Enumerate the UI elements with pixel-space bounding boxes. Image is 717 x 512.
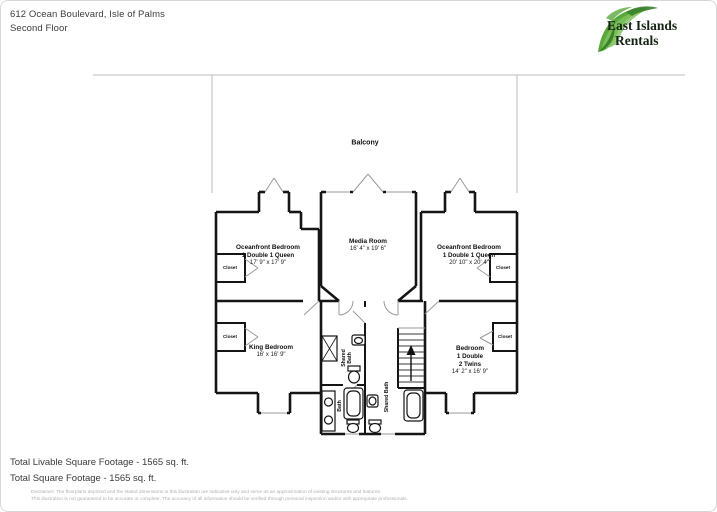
- total-sqft: Total Square Footage - 1565 sq. ft.: [10, 473, 156, 484]
- balcony-label: Balcony: [351, 138, 378, 147]
- media-room-label: Media Room 16' 4" x 19' 6": [349, 238, 387, 254]
- closet-label: Closet: [496, 265, 510, 271]
- closet-label: Closet: [223, 334, 237, 340]
- oceanfront-right-label: Oceanfront Bedroom 1 Double 1 Queen 20' …: [437, 244, 501, 268]
- staircase: [399, 334, 424, 382]
- king-bedroom-label: King Bedroom 16' x 16' 9": [249, 344, 293, 360]
- bath-fixtures: [322, 335, 423, 433]
- bath-label: Bath: [338, 400, 344, 412]
- disclaimer-line2: This illustration is not guaranteed to b…: [31, 497, 408, 502]
- shared-bath-right-label: Shared Bath: [385, 382, 391, 413]
- closet-boxes: [216, 254, 517, 351]
- oceanfront-left-label: Oceanfront Bedroom 1 Double 1 Queen 17' …: [236, 244, 300, 268]
- closet-label: Closet: [498, 334, 512, 340]
- disclaimer-line1: Disclaimer: The floorplans depicted and …: [31, 490, 381, 495]
- floor-plan-page: 612 Ocean Boulevard, Isle of Palms Secon…: [0, 0, 717, 512]
- total-livable-sqft: Total Livable Square Footage - 1565 sq. …: [10, 457, 189, 468]
- balcony-outline: [93, 75, 685, 193]
- shower-icon: [322, 336, 337, 361]
- floor-plan-drawing: [1, 1, 717, 512]
- double-vanity-icon: [322, 391, 335, 431]
- bedroom-label: Bedroom 1 Double 2 Twins 14' 2" x 16' 9": [452, 345, 488, 377]
- shared-bath-top-label: Shared Bath: [342, 349, 354, 367]
- closet-label: Closet: [223, 265, 237, 271]
